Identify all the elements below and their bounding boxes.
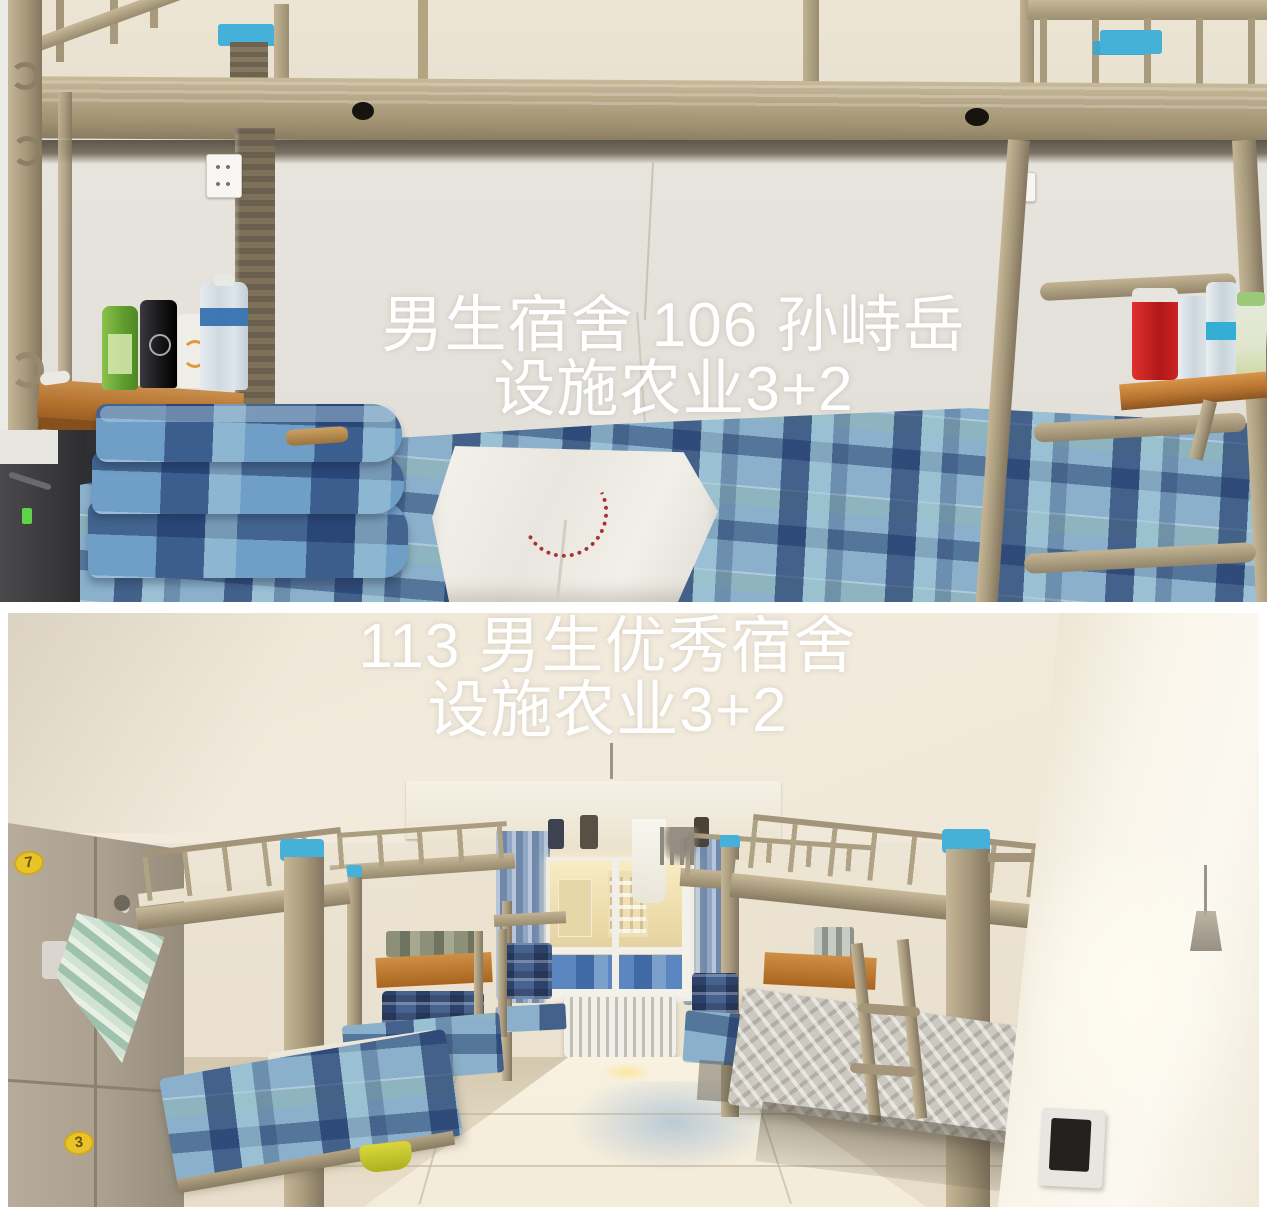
- beam-knob: [352, 102, 374, 120]
- guardrail-post: [274, 4, 289, 88]
- hanging-clothes-dark: [580, 815, 598, 849]
- bottom-photo-caption: 113 男生优秀宿舍 设施农业3+2: [8, 615, 1233, 743]
- right-pendant-lamp: [1204, 865, 1207, 915]
- green-indicator: [22, 508, 32, 524]
- stacked-papers: [0, 430, 58, 464]
- right-guardrail-top-bar: [1028, 0, 1267, 20]
- window-mullion-vertical: [612, 861, 619, 989]
- light-switch-rocker: [1049, 1118, 1092, 1172]
- radiator: [564, 997, 676, 1057]
- window-frame: [546, 857, 694, 1001]
- cable-bundle: [8, 471, 52, 490]
- under-beam-shadow: [0, 140, 1267, 164]
- top-photo-dorm-bed-closeup: 男生宿舍 106 孙峙岳 设施农业3+2: [0, 0, 1267, 602]
- outlet-socket-holes: [215, 179, 231, 189]
- ladder-hook: [10, 62, 40, 90]
- floor-warm-glint: [600, 1063, 654, 1081]
- bottom-caption-line2: 设施农业3+2: [8, 679, 1233, 743]
- locker-lock-with-key: [114, 895, 130, 911]
- top-caption-line1: 男生宿舍 106 孙峙岳: [40, 294, 1267, 358]
- far-left-folded-bedding: [500, 943, 552, 999]
- pendant-chandelier: [660, 827, 700, 865]
- building: [558, 879, 592, 937]
- top-photo-caption: 男生宿舍 106 孙峙岳 设施农业3+2: [40, 294, 1267, 422]
- ceiling-lamp-cord: [610, 743, 613, 779]
- bunkC-folded-bedding: [692, 973, 738, 1013]
- locker-number-text: 3: [74, 1134, 84, 1152]
- water-bottle-cap: [214, 274, 234, 286]
- ladder-hook: [12, 136, 42, 166]
- panel-divider: [803, 0, 819, 88]
- bottom-caption-line1: 113 男生优秀宿舍: [8, 615, 1233, 679]
- top-caption-line2: 设施农业3+2: [40, 358, 1267, 422]
- photo-divider: [0, 602, 1267, 613]
- power-outlet: [206, 154, 242, 198]
- light-switch-plate: [1038, 1107, 1106, 1188]
- hanging-clothes-dark: [548, 819, 564, 849]
- bunkC-desk-bottles: [814, 927, 854, 957]
- locker-number-text: 7: [24, 854, 35, 872]
- outlet-socket-holes: [215, 162, 231, 172]
- bottom-photo-dorm-room: 7 3: [8, 613, 1259, 1207]
- blue-plastic-hook: [1100, 30, 1162, 54]
- window-mullion-horizontal: [550, 947, 682, 954]
- panel-divider: [418, 0, 428, 88]
- beam-knob: [965, 108, 989, 126]
- dormitory-photo-collage: 男生宿舍 106 孙峙岳 设施农业3+2: [0, 0, 1267, 1217]
